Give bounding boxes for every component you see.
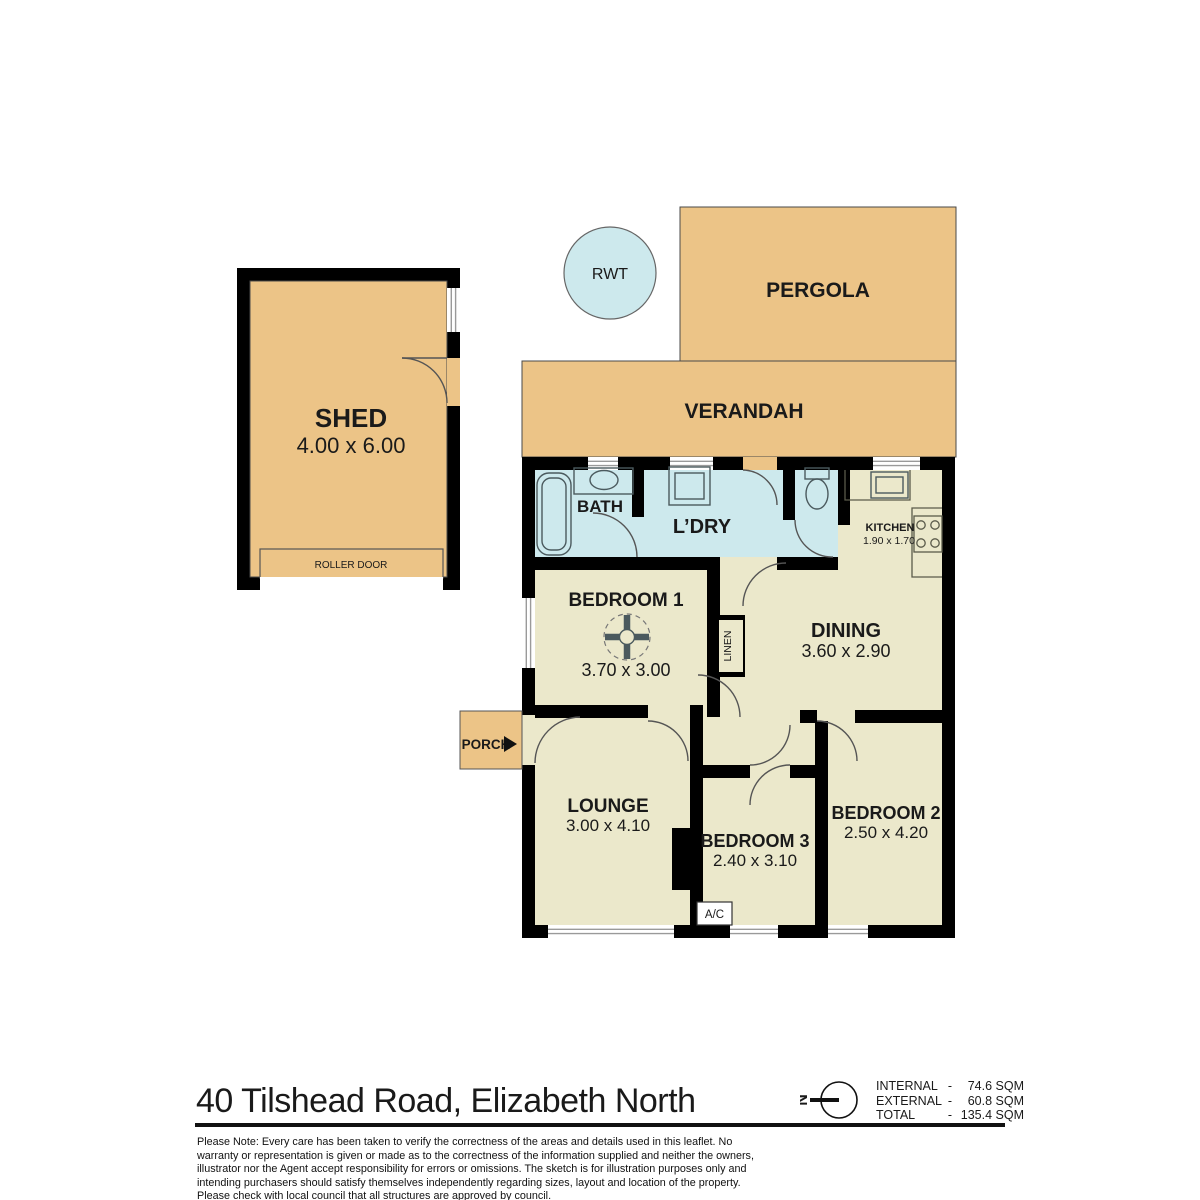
area-row-external: EXTERNAL - 60.8 SQM — [876, 1094, 1024, 1109]
shed: SHED 4.00 x 6.00 ROLLER DOOR — [237, 268, 460, 590]
house: LINEN — [522, 457, 955, 938]
divider-line — [195, 1123, 1005, 1127]
shed-door-opening — [447, 358, 460, 406]
disclaimer-text: Please Note: Every care has been taken t… — [197, 1136, 772, 1200]
shed-dims: 4.00 x 6.00 — [297, 433, 406, 458]
bedroom3-label: BEDROOM 3 — [700, 831, 809, 851]
floorplan-page: PERGOLA VERANDAH RWT SHED 4.00 x 6.00 RO… — [0, 0, 1200, 1200]
area-summary: INTERNAL - 74.6 SQM EXTERNAL - 60.8 SQM … — [876, 1079, 1024, 1123]
shed-label: SHED — [315, 403, 387, 433]
bedroom1-dims: 3.70 x 3.00 — [581, 660, 670, 680]
roller-door-opening — [260, 577, 443, 590]
roller-door-label: ROLLER DOOR — [315, 560, 388, 571]
linen-cupboard: LINEN — [707, 615, 745, 677]
bedroom1-label: BEDROOM 1 — [568, 590, 684, 611]
back-door-opening — [743, 457, 777, 470]
address-title: 40 Tilshead Road, Elizabeth North — [196, 1082, 695, 1121]
pergola-label: PERGOLA — [766, 279, 870, 302]
dining-dims: 3.60 x 2.90 — [801, 641, 890, 661]
kitchen-dims: 1.90 x 1.70 — [863, 535, 915, 547]
lounge-dims: 3.00 x 4.10 — [566, 816, 650, 835]
porch-label: PORCH — [462, 737, 511, 752]
shed-window-icon — [447, 288, 460, 332]
bedroom3-dims: 2.40 x 3.10 — [713, 851, 797, 870]
linen-label: LINEN — [722, 631, 734, 662]
dining-label: DINING — [811, 620, 881, 642]
bath-label: BATH — [577, 497, 623, 516]
front-door-opening — [522, 715, 535, 765]
north-compass-icon: N — [800, 1076, 862, 1126]
area-row-internal: INTERNAL - 74.6 SQM — [876, 1079, 1024, 1094]
ac-label: A/C — [705, 909, 724, 921]
laundry-label: L’DRY — [673, 516, 732, 538]
air-conditioner: A/C — [697, 902, 732, 925]
verandah-label: VERANDAH — [684, 400, 803, 423]
bedroom2-dims: 2.50 x 4.20 — [844, 823, 928, 842]
compass-north-label: N — [800, 1094, 811, 1106]
area-row-total: TOTAL - 135.4 SQM — [876, 1108, 1024, 1123]
lounge-label: LOUNGE — [567, 796, 648, 817]
rwt-label: RWT — [592, 266, 628, 283]
kitchen-label: KITCHEN — [866, 522, 915, 534]
porch: PORCH — [460, 711, 522, 769]
bedroom2-label: BEDROOM 2 — [831, 803, 940, 823]
floorplan-drawing: PERGOLA VERANDAH RWT SHED 4.00 x 6.00 RO… — [0, 0, 1200, 1070]
